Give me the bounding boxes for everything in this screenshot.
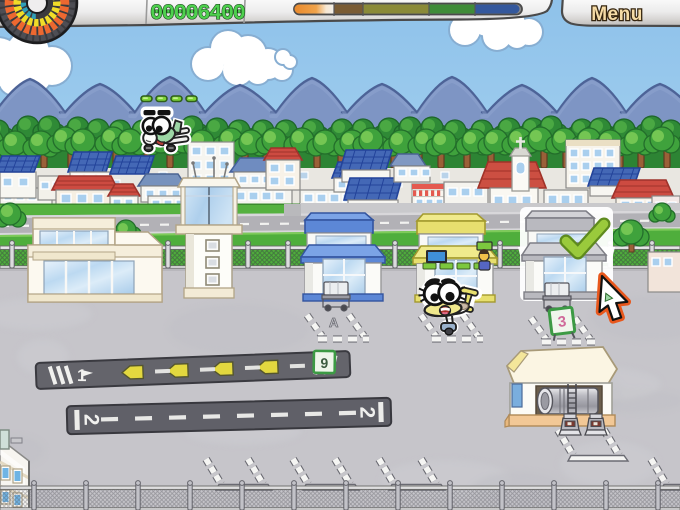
svg-text:00006400: 00006400 [150, 1, 245, 26]
svg-text:2: 2 [355, 406, 378, 418]
svg-text:1: 1 [77, 366, 87, 385]
svg-text:9: 9 [320, 355, 328, 371]
svg-text:A: A [329, 315, 339, 330]
svg-text:2: 2 [79, 413, 102, 425]
svg-text:Menu: Menu [591, 4, 643, 25]
